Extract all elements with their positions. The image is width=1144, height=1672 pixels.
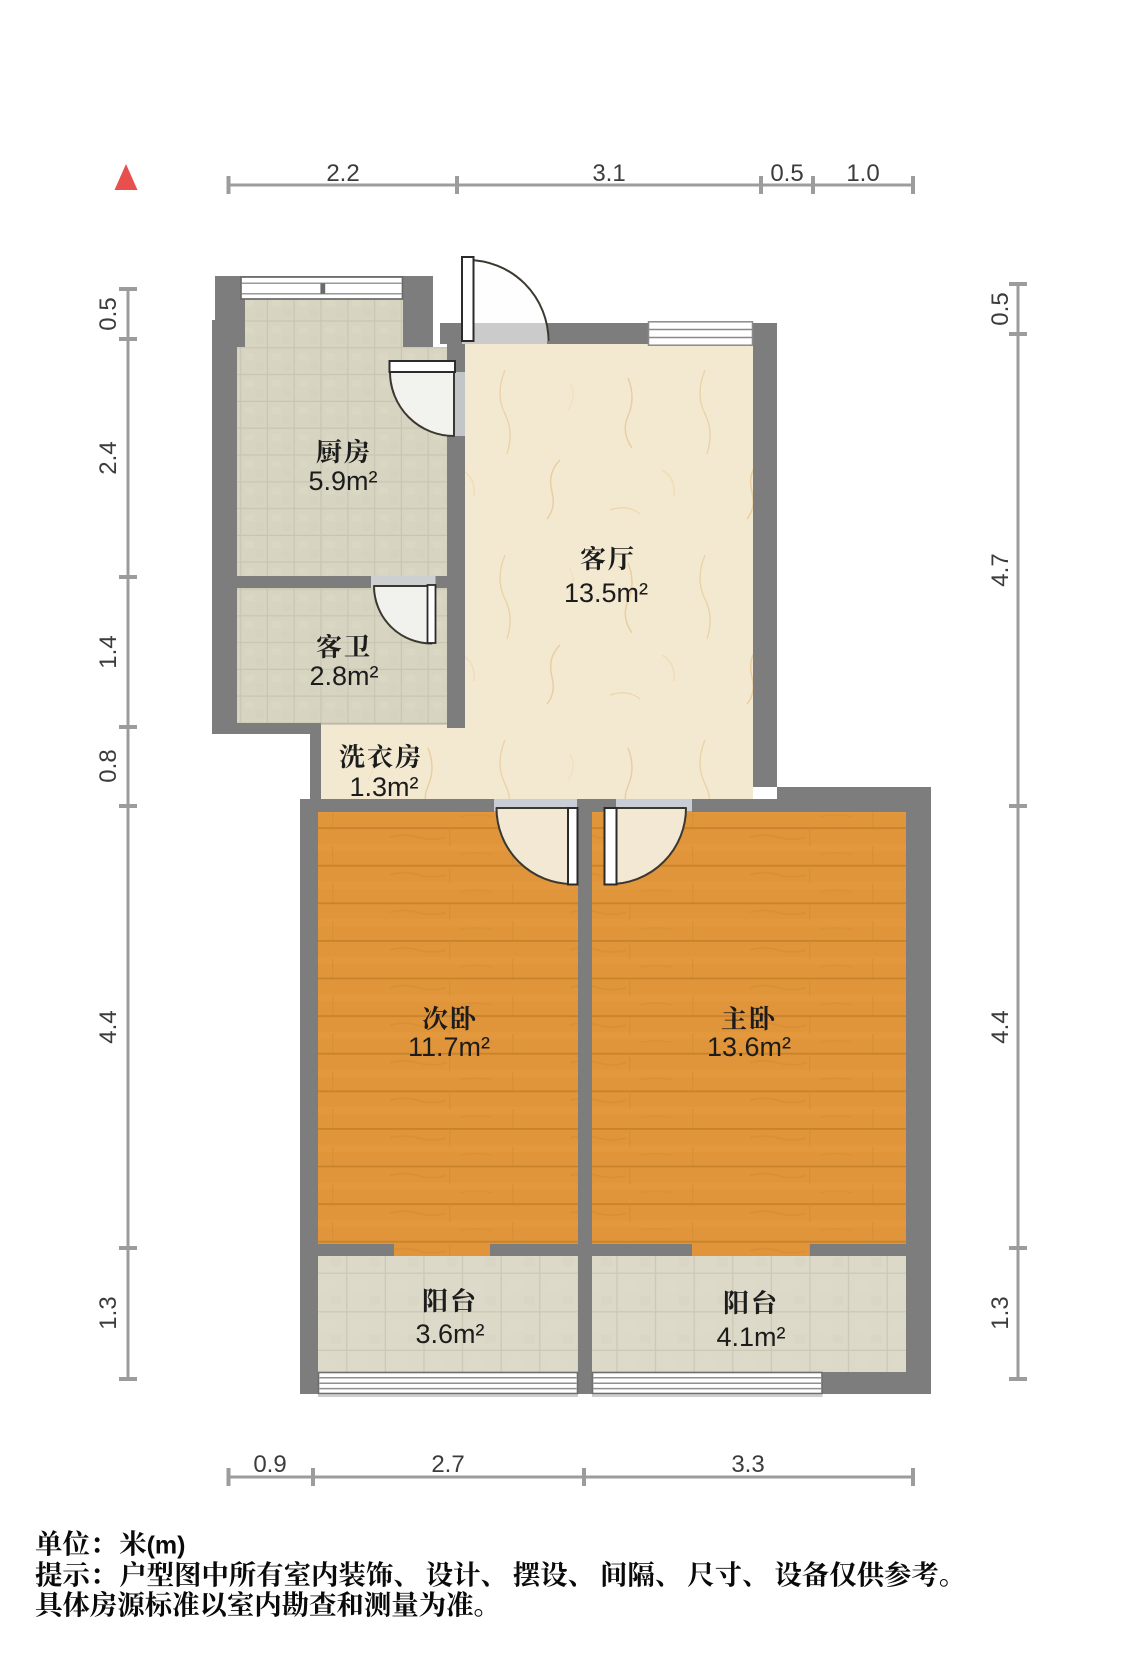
svg-text:4.4: 4.4 — [987, 1010, 1014, 1043]
svg-text:1.3: 1.3 — [987, 1296, 1014, 1329]
svg-text:2.7: 2.7 — [431, 1451, 464, 1478]
svg-text:0.5: 0.5 — [987, 292, 1014, 325]
svg-text:2.8m²: 2.8m² — [309, 661, 378, 691]
svg-text:2.4: 2.4 — [95, 441, 122, 474]
svg-text:0.5: 0.5 — [770, 160, 803, 187]
svg-text:11.7m²: 11.7m² — [408, 1032, 490, 1062]
svg-text:3.1: 3.1 — [592, 160, 625, 187]
svg-text:0.5: 0.5 — [95, 297, 122, 330]
svg-text:1.4: 1.4 — [95, 635, 122, 668]
svg-text:13.6m²: 13.6m² — [707, 1032, 791, 1062]
svg-text:4.1m²: 4.1m² — [716, 1322, 785, 1352]
svg-text:13.5m²: 13.5m² — [564, 578, 648, 608]
svg-text:(m): (m) — [147, 1532, 186, 1560]
svg-text:3.3: 3.3 — [731, 1451, 764, 1478]
svg-text:1.3m²: 1.3m² — [349, 772, 418, 802]
svg-text:0.8: 0.8 — [95, 749, 122, 782]
svg-text:1.0: 1.0 — [846, 160, 879, 187]
svg-text:3.6m²: 3.6m² — [415, 1319, 484, 1349]
svg-text:2.2: 2.2 — [326, 160, 359, 187]
svg-text:4.4: 4.4 — [95, 1010, 122, 1043]
svg-text:4.7: 4.7 — [987, 553, 1014, 586]
svg-text:0.9: 0.9 — [253, 1451, 286, 1478]
svg-text:1.3: 1.3 — [95, 1296, 122, 1329]
svg-text:5.9m²: 5.9m² — [308, 466, 377, 496]
